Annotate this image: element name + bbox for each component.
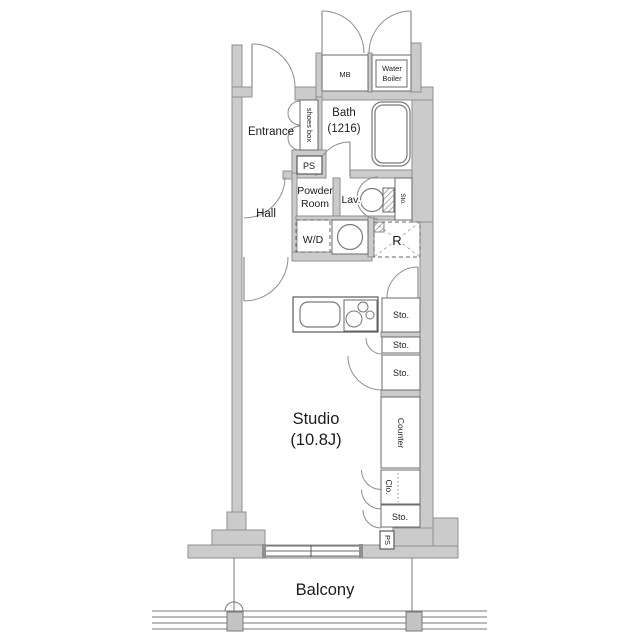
floorplan-drawing: Entrance Hall Bath (1216) Powder Room La… xyxy=(0,0,640,640)
wall-sto-divider1 xyxy=(381,332,420,337)
wall-mb-left xyxy=(316,53,322,97)
label-powder-2: Room xyxy=(301,198,329,210)
label-wd: W/D xyxy=(303,234,324,246)
label-water-boiler-2: Boiler xyxy=(382,74,402,83)
wall-washer-r-divider xyxy=(368,216,374,257)
label-mb: MB xyxy=(339,70,350,79)
wall-bath-bottom xyxy=(350,170,412,178)
label-studio-size: (10.8J) xyxy=(290,431,341,449)
duct-hatch-square xyxy=(374,222,384,232)
label-studio: Studio xyxy=(293,410,340,428)
kitchen-sink xyxy=(300,302,340,327)
wall-powder-lav-divider xyxy=(333,178,340,218)
label-closet: Clo. xyxy=(384,479,394,494)
wall-left-pier xyxy=(212,530,265,546)
sto-bottom-door-arc xyxy=(363,510,381,528)
closet-door-arc2 xyxy=(362,490,382,510)
label-sto-lav: Sto. xyxy=(399,193,406,205)
window-end-left xyxy=(262,544,266,558)
wall-right-upper xyxy=(412,97,433,222)
railing-post-right xyxy=(406,612,422,631)
label-bath-size: (1216) xyxy=(327,123,360,135)
stove xyxy=(344,300,377,331)
label-sto-bottom: Sto. xyxy=(392,512,408,522)
label-powder-1: Powder xyxy=(297,185,333,197)
label-ps-lower: PS xyxy=(383,535,392,545)
label-bath: Bath xyxy=(332,107,356,119)
studio-door-arc xyxy=(244,257,288,301)
window-sliding-lower xyxy=(265,551,360,556)
toilet-bowl xyxy=(361,189,384,212)
label-water-boiler-1: Water xyxy=(382,64,402,73)
wall-entrance-hall-stub xyxy=(283,171,292,179)
label-sto-kitchen: Sto. xyxy=(393,310,409,320)
label-hall: Hall xyxy=(256,208,276,220)
wall-mb-divider xyxy=(368,53,372,92)
mb-door-left-arc xyxy=(322,11,364,53)
label-balcony: Balcony xyxy=(296,581,355,599)
wall-entry-stub xyxy=(232,87,252,97)
entrance-door-arc xyxy=(252,44,295,87)
label-sto-mid2: Sto. xyxy=(393,368,409,378)
label-ps-upper: PS xyxy=(303,161,315,171)
label-lav: Lav. xyxy=(341,194,360,206)
sto-kitchen-door-arc xyxy=(387,267,418,298)
sto-mid2-door-arc xyxy=(348,356,382,390)
window-end-right xyxy=(359,544,363,558)
shoesbox-door-arc1 xyxy=(288,101,300,125)
label-shoes-box: shoes box xyxy=(305,108,314,142)
wall-right-step xyxy=(433,518,458,546)
label-counter: Counter xyxy=(396,418,406,448)
wall-sto-counter-divider xyxy=(381,390,420,397)
wall-left xyxy=(232,45,242,512)
mb-door-right-arc xyxy=(369,11,411,53)
wall-mb-right xyxy=(411,43,421,92)
toilet-tank xyxy=(383,188,394,212)
closet-door-arc1 xyxy=(362,470,382,490)
label-entrance: Entrance xyxy=(248,126,294,138)
floorplan-page: Entrance Hall Bath (1216) Powder Room La… xyxy=(0,0,640,640)
wall-right-lower xyxy=(420,222,433,528)
washing-machine-circle xyxy=(338,225,363,250)
railing-post-left xyxy=(227,612,243,631)
label-sto-mid1: Sto. xyxy=(393,340,409,350)
label-refrigerator: R xyxy=(392,233,401,248)
bathtub-inner xyxy=(375,105,407,163)
sto-mid1-door-arc xyxy=(366,338,382,354)
window-sliding-upper xyxy=(265,546,360,551)
